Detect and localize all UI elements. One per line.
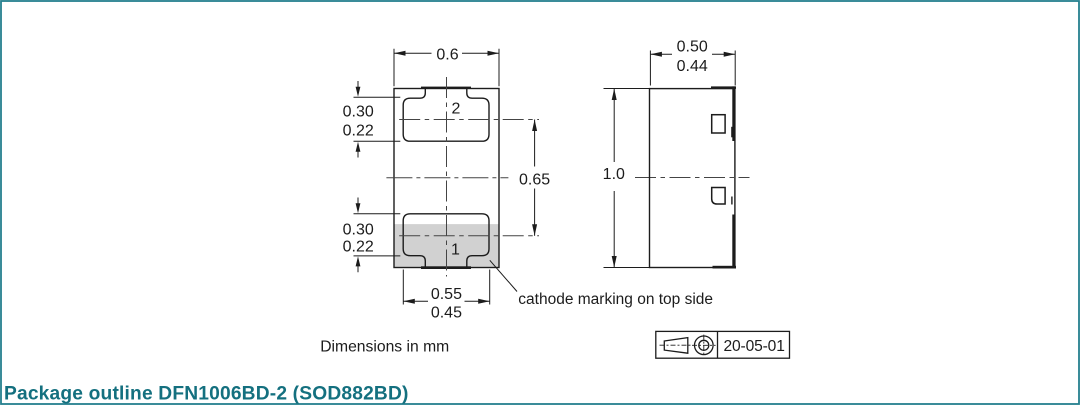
- svg-text:0.22: 0.22: [343, 122, 374, 139]
- svg-text:0.30: 0.30: [343, 222, 374, 239]
- svg-text:0.65: 0.65: [519, 172, 550, 189]
- svg-text:0.44: 0.44: [677, 58, 708, 75]
- svg-text:2: 2: [452, 101, 461, 118]
- svg-text:0.45: 0.45: [431, 305, 462, 322]
- svg-text:0.55: 0.55: [431, 286, 462, 303]
- svg-text:20-05-01: 20-05-01: [724, 338, 785, 355]
- svg-text:0.22: 0.22: [343, 239, 374, 256]
- svg-text:Package outline DFN1006BD-2 (S: Package outline DFN1006BD-2 (SOD882BD): [4, 384, 409, 405]
- svg-text:0.6: 0.6: [436, 47, 458, 64]
- svg-text:0.50: 0.50: [677, 38, 708, 55]
- svg-text:1.0: 1.0: [603, 166, 625, 183]
- svg-text:Dimensions in mm: Dimensions in mm: [320, 339, 449, 356]
- svg-text:1: 1: [451, 242, 460, 259]
- svg-text:cathode marking on top side: cathode marking on top side: [518, 291, 713, 308]
- svg-text:0.30: 0.30: [343, 103, 374, 120]
